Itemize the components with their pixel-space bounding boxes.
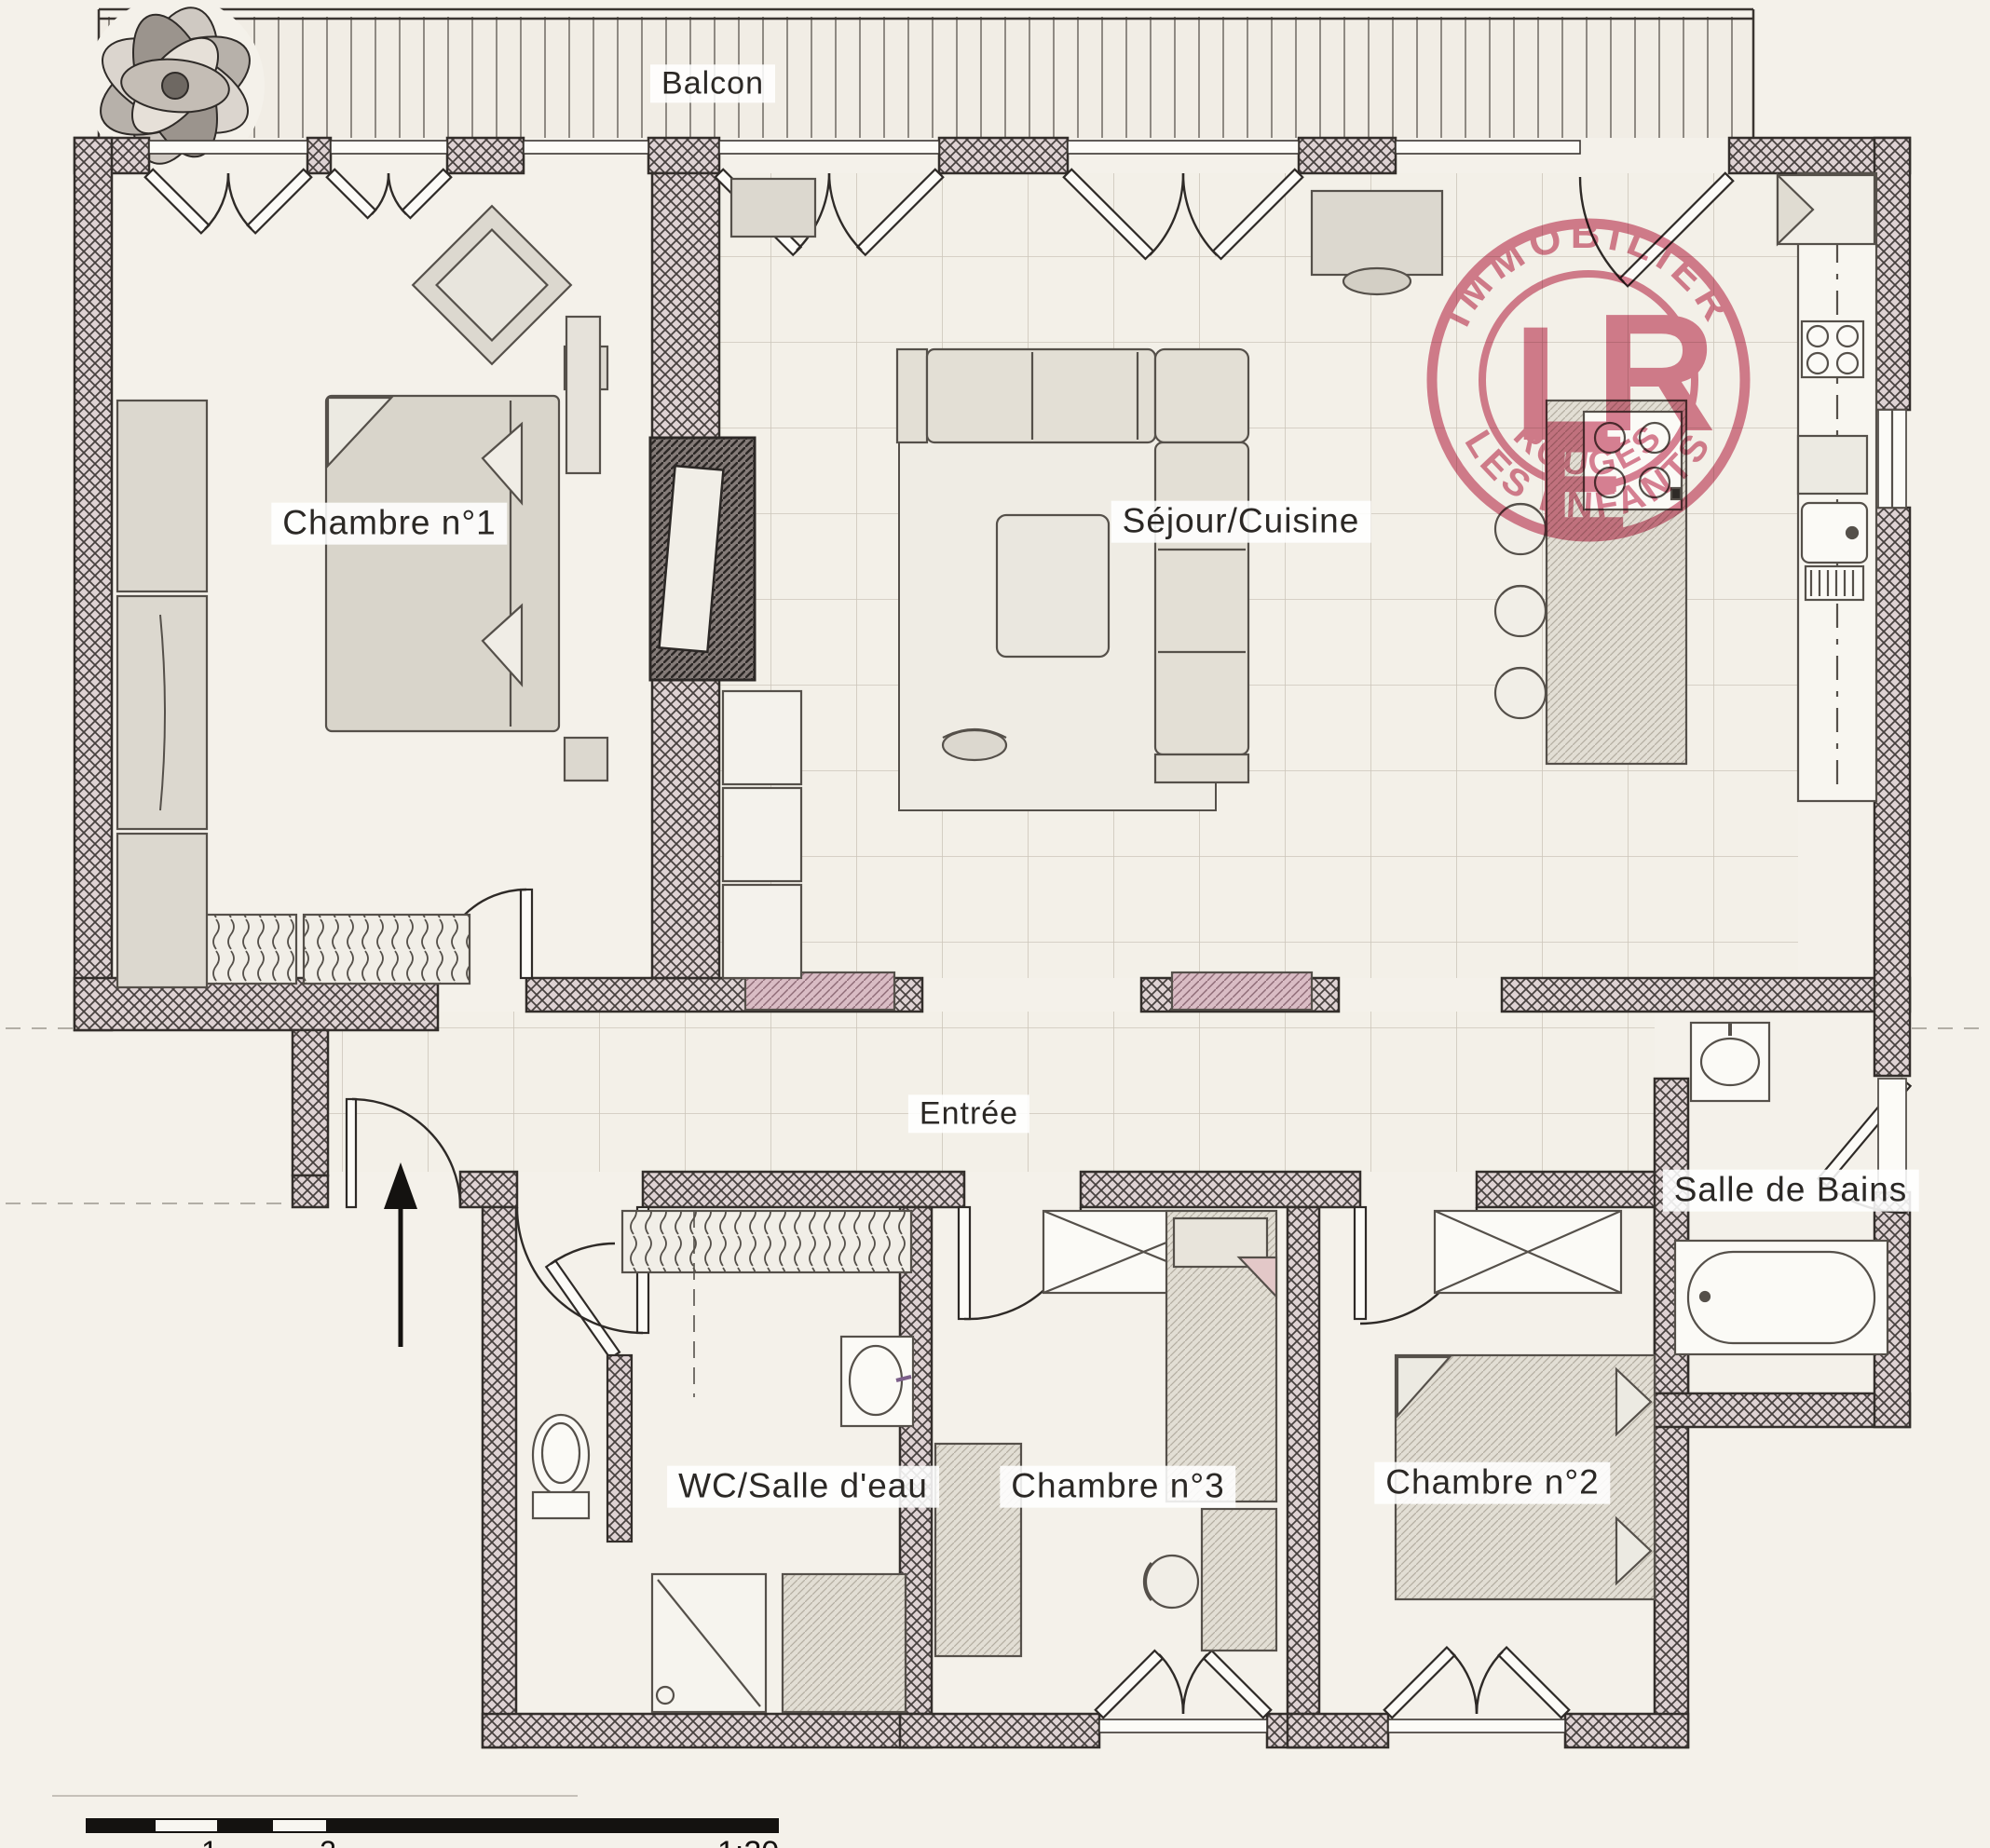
- washbasin: [841, 1337, 913, 1426]
- label-wc-shower: WC/Salle d'eau: [667, 1466, 939, 1508]
- balcony-area: [99, 9, 1753, 138]
- entrance-floor: [328, 1012, 1655, 1172]
- fridge: [1778, 175, 1874, 244]
- label-bathroom: Salle de Bains: [1663, 1170, 1919, 1212]
- table: [1312, 191, 1442, 275]
- floor-plan: IMMOBILIER LES ENFANTS ROUGES L R E Balc…: [0, 0, 1990, 1848]
- label-entrance: Entrée: [908, 1094, 1029, 1133]
- nightstand: [565, 738, 607, 781]
- desk: [1202, 1509, 1276, 1651]
- bedroom3-furniture: [935, 1211, 1276, 1656]
- kitchen-sink: [1802, 503, 1867, 600]
- wardrobe: [117, 401, 207, 591]
- scale-bar: 1 2 1:20: [0, 1811, 838, 1848]
- balcony-decking: [99, 17, 1753, 138]
- armchair: [413, 206, 571, 364]
- entrance-arrow-icon: [384, 1162, 417, 1347]
- wc-shower-room: [533, 1211, 913, 1712]
- scale-bar-rule: [86, 1818, 779, 1833]
- label-bedroom3: Chambre n°3: [1000, 1466, 1235, 1508]
- single-bed: [1166, 1211, 1276, 1501]
- label-bedroom1: Chambre n°1: [271, 503, 507, 545]
- bowl: [943, 730, 1006, 760]
- bathroom-sink: [1691, 1023, 1769, 1101]
- bathtub: [1675, 1241, 1888, 1354]
- table-pedestal: [1343, 268, 1411, 294]
- dishwasher: [1798, 436, 1867, 494]
- floor-plan-drawing: IMMOBILIER LES ENFANTS ROUGES L R E: [0, 0, 1990, 1848]
- scale-tick-1: 1: [201, 1835, 218, 1848]
- stamp-monogram-e: E: [1535, 406, 1629, 563]
- closet: [1435, 1211, 1621, 1293]
- label-balcony: Balcon: [650, 64, 775, 102]
- scale-ratio: 1:20: [717, 1835, 779, 1848]
- scale-tick-2: 2: [320, 1835, 336, 1848]
- kitchen-window: [1878, 410, 1906, 508]
- washing-machine: [783, 1574, 906, 1712]
- partition: [607, 1355, 632, 1542]
- mirror: [566, 317, 600, 473]
- bedroom2-furniture: [1396, 1211, 1655, 1599]
- shower: [652, 1574, 766, 1712]
- sideboard: [731, 179, 815, 237]
- toilet: [533, 1415, 589, 1518]
- shelf-unit: [723, 691, 801, 784]
- bedroom1-furniture: [117, 206, 607, 987]
- desk-chair: [1144, 1556, 1198, 1608]
- fireplace-chimney: [650, 438, 755, 680]
- double-bed: [326, 396, 559, 731]
- label-living-kitchen: Séjour/Cuisine: [1111, 501, 1371, 543]
- coffee-table: [997, 515, 1109, 657]
- label-bedroom2: Chambre n°2: [1374, 1462, 1610, 1504]
